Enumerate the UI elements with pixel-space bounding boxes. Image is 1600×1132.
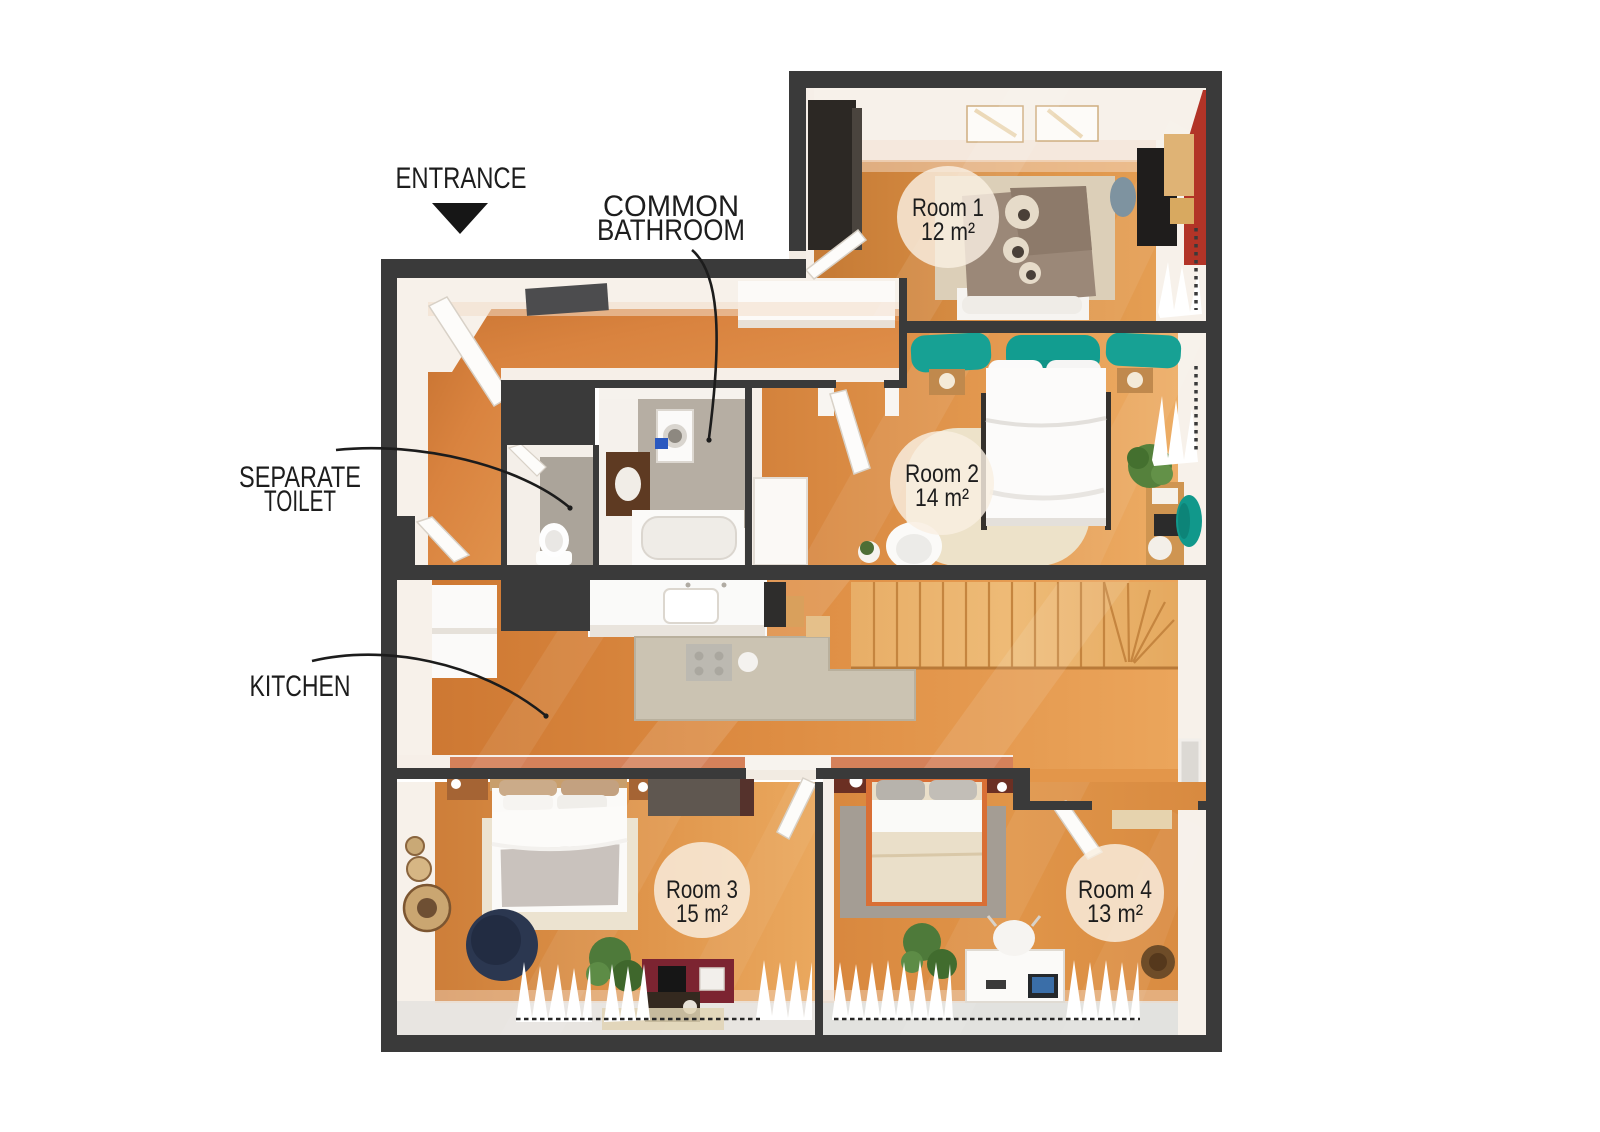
svg-text:14 m²: 14 m² [915,484,969,512]
svg-text:BATHROOM: BATHROOM [597,214,745,247]
svg-text:KITCHEN: KITCHEN [250,670,351,703]
svg-text:ENTRANCE: ENTRANCE [396,162,527,195]
svg-text:12 m²: 12 m² [921,218,975,246]
svg-text:13 m²: 13 m² [1087,900,1143,928]
svg-text:TOILET: TOILET [264,485,336,518]
svg-text:15 m²: 15 m² [676,900,728,928]
